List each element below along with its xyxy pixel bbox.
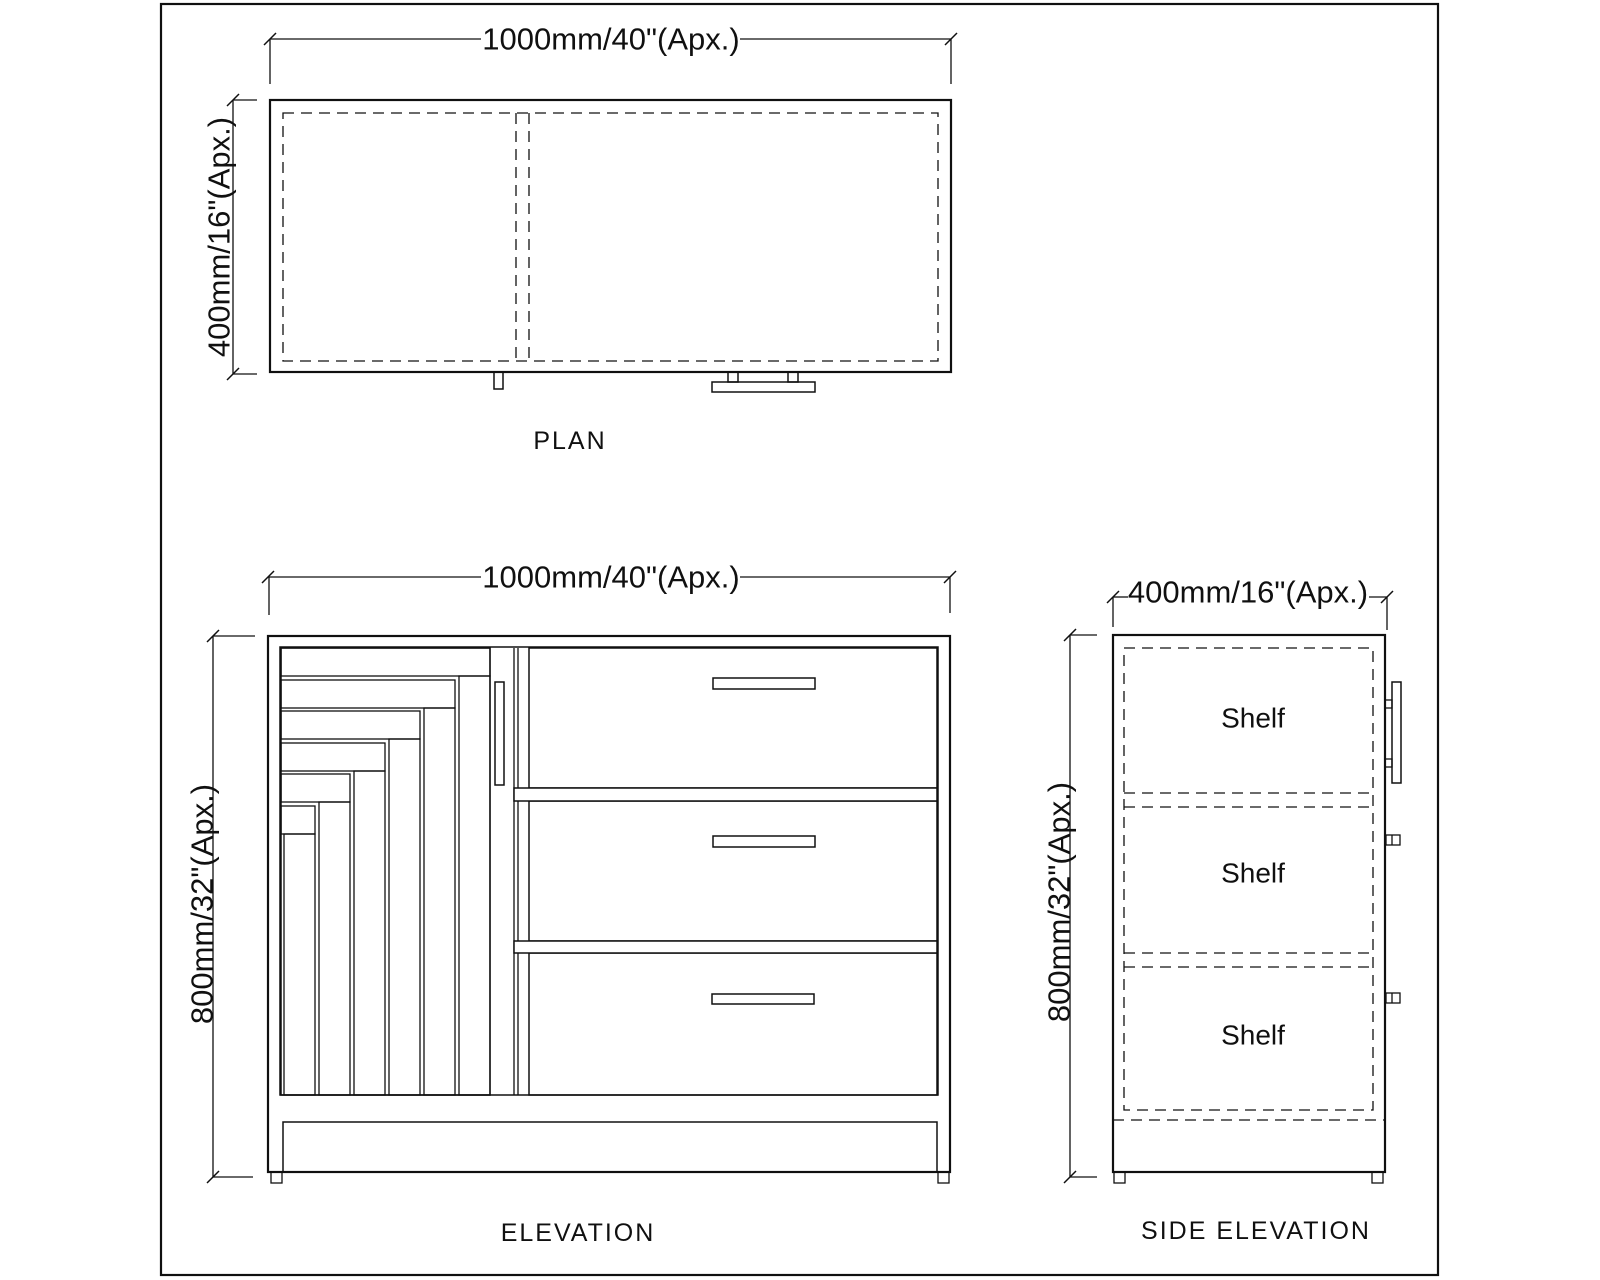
- drawer-1: [529, 648, 937, 788]
- plan-depth-dim-text: 400mm/16"(Apx.): [202, 117, 237, 357]
- elevation-height-dim-text: 800mm/32"(Apx.): [185, 784, 220, 1024]
- plan-width-dimension: 1000mm/40"(Apx.): [264, 22, 957, 85]
- plan-inner-dashed: [283, 113, 938, 361]
- drawing-sheet: 1000mm/40"(Apx.) 400mm/16"(Apx.) PLAN: [0, 0, 1600, 1280]
- plan-view: 1000mm/40"(Apx.) 400mm/16"(Apx.) PLAN: [202, 22, 958, 456]
- drawer-2: [529, 801, 937, 941]
- elevation-outline: [268, 636, 950, 1172]
- plan-depth-dimension: 400mm/16"(Apx.): [202, 94, 258, 380]
- door-panel: [281, 648, 504, 1095]
- drawer-rail: [514, 788, 937, 801]
- drawer-2-handle: [713, 836, 815, 847]
- plan-drawer-handle: [712, 372, 815, 392]
- foot: [1114, 1172, 1125, 1183]
- elevation-view: 1000mm/40"(Apx.) 800mm/32"(Apx.): [185, 560, 957, 1248]
- elevation-height-dimension: 800mm/32"(Apx.): [185, 630, 256, 1183]
- side-drawer-knob-3: [1386, 993, 1400, 1003]
- drawer-3: [529, 953, 937, 1095]
- side-elevation-view: 400mm/16"(Apx.) 800mm/32"(Apx.) Shelf Sh…: [1042, 575, 1402, 1246]
- plan-outline: [270, 100, 951, 372]
- drawing-canvas: 1000mm/40"(Apx.) 400mm/16"(Apx.) PLAN: [0, 0, 1600, 1280]
- side-height-dim-text: 800mm/32"(Apx.): [1042, 782, 1077, 1022]
- drawer-stack: [514, 648, 937, 1095]
- shelf-label-2: Shelf: [1221, 858, 1285, 889]
- foot: [938, 1172, 949, 1183]
- elevation-front-frame: [280, 647, 938, 1095]
- plan-door-knob: [494, 372, 503, 389]
- side-height-dimension: 800mm/32"(Apx.): [1042, 629, 1098, 1183]
- plan-label: PLAN: [533, 427, 606, 455]
- drawer-3-handle: [712, 994, 814, 1004]
- side-width-dim-text: 400mm/16"(Apx.): [1128, 575, 1368, 610]
- door-handle: [495, 682, 504, 785]
- shelf-label-1: Shelf: [1221, 703, 1285, 734]
- elevation-width-dimension: 1000mm/40"(Apx.): [262, 560, 956, 616]
- side-elevation-label: SIDE ELEVATION: [1141, 1217, 1371, 1245]
- plan-width-dim-text: 1000mm/40"(Apx.): [482, 22, 739, 57]
- side-width-dimension: 400mm/16"(Apx.): [1107, 575, 1393, 631]
- foot: [1372, 1172, 1383, 1183]
- foot: [271, 1172, 282, 1183]
- shelf-label-3: Shelf: [1221, 1020, 1285, 1051]
- sheet-border: [161, 4, 1438, 1275]
- drawer-rail: [514, 941, 937, 953]
- elevation-plinth: [283, 1122, 937, 1172]
- elevation-label: ELEVATION: [501, 1219, 656, 1247]
- elevation-width-dim-text: 1000mm/40"(Apx.): [482, 560, 739, 595]
- drawer-1-handle: [713, 678, 815, 689]
- side-drawer-knob-2: [1386, 835, 1400, 845]
- side-door-handle: [1385, 682, 1401, 783]
